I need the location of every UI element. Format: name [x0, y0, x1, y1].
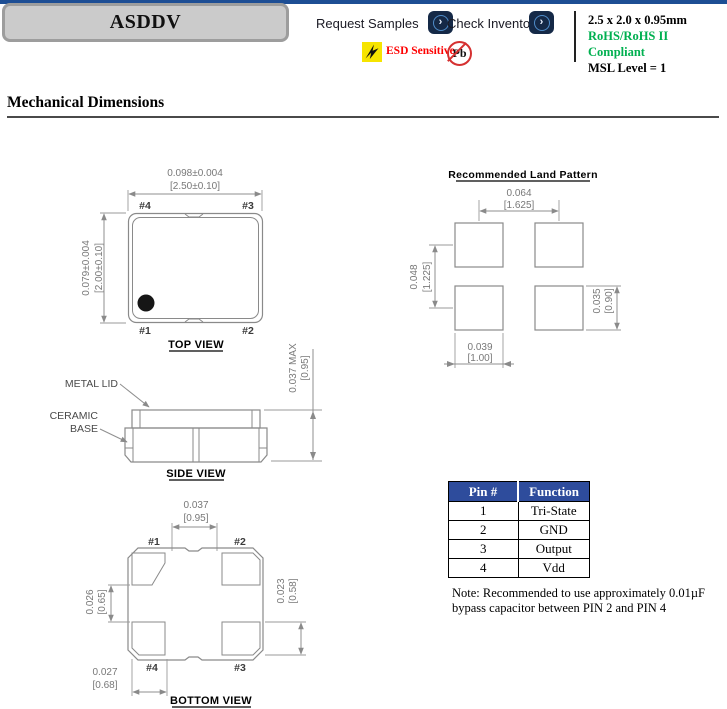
land-pitch-y-in: 0.048 — [409, 264, 420, 289]
land-pitch-x-mm: [1.625] — [504, 200, 535, 211]
land-pitch-x-in: 0.064 — [506, 188, 531, 199]
request-samples-link[interactable]: Request Samples — [316, 16, 419, 31]
pb-free-icon: Pb — [447, 41, 472, 66]
bottom-view-drawing: 0.037 [0.95] #1 #2 0.026 [0.65] 0.023 [0… — [85, 500, 306, 707]
land-pad — [535, 286, 583, 330]
msl-level-text: MSL Level = 1 — [588, 60, 727, 76]
land-pattern-drawing: Recommended Land Pattern 0.064 [1.625] 0… — [409, 169, 621, 368]
top-view-pin2-label: #2 — [242, 325, 254, 337]
esd-warning-icon — [362, 42, 382, 62]
check-inventory-link[interactable]: Check Inventory — [447, 16, 541, 31]
metal-lid-label: METAL LID — [65, 378, 119, 390]
ceramic-base-shape — [125, 428, 267, 462]
bottom-pad-dim-mm: [0.68] — [92, 680, 117, 691]
section-title: Mechanical Dimensions — [7, 94, 164, 112]
bottom-view-pin3-label: #3 — [234, 662, 246, 674]
top-view-height-dim-mm: [2.00±0.10] — [94, 243, 105, 293]
pin-function: GND — [518, 521, 590, 540]
datasheet-page: ASDDV Request Samples › Check Inventory … — [0, 0, 727, 709]
esd-sensitive-label: ESD Sensitive — [386, 45, 455, 57]
land-pad-width-mm: [1.00] — [467, 353, 492, 364]
ceramic-label: CERAMIC — [50, 410, 99, 422]
table-row: 4 Vdd — [449, 559, 590, 578]
mechanical-drawings: 0.098±0.004 [2.50±0.10] #4 #3 0.079±0.00… — [0, 130, 727, 709]
bottom-right-dim-mm: [0.58] — [288, 578, 299, 603]
bottom-pad-dim-in: 0.027 — [92, 667, 117, 678]
bottom-view-pin1-label: #1 — [148, 536, 160, 548]
pin-function: Vdd — [518, 559, 590, 578]
bottom-right-dim-in: 0.023 — [276, 578, 287, 603]
side-view-drawing: METAL LID CERAMIC BASE SIDE VIEW 0.037 M… — [50, 343, 322, 480]
bottom-package-outline — [128, 548, 263, 660]
pin-function-table: Pin # Function 1 Tri-State 2 GND 3 Outpu… — [448, 481, 590, 578]
rohs-compliant-text: RoHS/RoHS II Compliant — [588, 28, 727, 60]
note-line-2: bypass capacitor between PIN 2 and PIN 4 — [452, 601, 714, 616]
bottom-view-title: BOTTOM VIEW — [170, 695, 252, 707]
side-view-title: SIDE VIEW — [166, 468, 226, 480]
base-label: BASE — [70, 423, 98, 435]
pin-number: 2 — [449, 521, 519, 540]
side-height-dim-in: 0.037 MAX — [288, 343, 299, 393]
land-pattern-title: Recommended Land Pattern — [448, 169, 598, 181]
bottom-left-dim-in: 0.026 — [85, 589, 96, 614]
pin1-marker-dot — [138, 295, 155, 312]
bypass-capacitor-note: Note: Recommended to use approximately 0… — [452, 586, 714, 616]
bottom-gap-dim-in: 0.037 — [183, 500, 208, 511]
pin-table-header-function: Function — [518, 482, 590, 502]
bottom-view-pin2-label: #2 — [234, 536, 246, 548]
top-view-pin1-label: #1 — [139, 325, 151, 337]
header-divider — [574, 11, 576, 62]
product-title: ASDDV — [110, 11, 181, 34]
top-view-height-dim-in: 0.079±0.004 — [81, 240, 92, 296]
top-view-width-dim-mm: [2.50±0.10] — [170, 181, 220, 192]
table-row: 3 Output — [449, 540, 590, 559]
package-size-text: 2.5 x 2.0 x 0.95mm — [588, 12, 727, 28]
top-view-drawing: 0.098±0.004 [2.50±0.10] #4 #3 0.079±0.00… — [81, 168, 263, 351]
circle-arrow-icon: › — [534, 15, 550, 31]
compliance-block: 2.5 x 2.0 x 0.95mm RoHS/RoHS II Complian… — [588, 12, 727, 76]
metal-lid-shape — [132, 410, 260, 428]
land-pitch-y-mm: [1.225] — [422, 261, 433, 292]
pin-function: Tri-State — [518, 502, 590, 521]
land-pad — [455, 223, 503, 267]
pin-function: Output — [518, 540, 590, 559]
pin-number: 1 — [449, 502, 519, 521]
pin-table-header-pin: Pin # — [449, 482, 519, 502]
top-view-pin4-label: #4 — [139, 200, 151, 212]
land-pad — [535, 223, 583, 267]
section-rule — [7, 116, 719, 118]
land-pad-height-in: 0.035 — [592, 288, 603, 313]
bottom-pad-4 — [132, 622, 165, 655]
check-inventory-button[interactable]: › — [529, 11, 554, 34]
land-pad — [455, 286, 503, 330]
bottom-pad-1 — [132, 553, 165, 585]
bottom-view-pin4-label: #4 — [146, 662, 158, 674]
pin-number: 3 — [449, 540, 519, 559]
bottom-pad-2 — [222, 553, 260, 585]
land-pad-height-mm: [0.90] — [604, 288, 615, 313]
bottom-pad-3 — [222, 622, 260, 655]
bottom-gap-dim-mm: [0.95] — [183, 513, 208, 524]
land-pad-width-in: 0.039 — [467, 342, 492, 353]
side-height-dim-mm: [0.95] — [300, 355, 311, 380]
top-view-title: TOP VIEW — [168, 339, 224, 351]
top-view-pin3-label: #3 — [242, 200, 254, 212]
product-title-box: ASDDV — [2, 3, 289, 42]
note-line-1: Note: Recommended to use approximately 0… — [452, 586, 714, 601]
bottom-left-dim-mm: [0.65] — [97, 589, 108, 614]
table-row: 1 Tri-State — [449, 502, 590, 521]
table-row: 2 GND — [449, 521, 590, 540]
top-view-width-dim-in: 0.098±0.004 — [167, 168, 223, 179]
pin-number: 4 — [449, 559, 519, 578]
